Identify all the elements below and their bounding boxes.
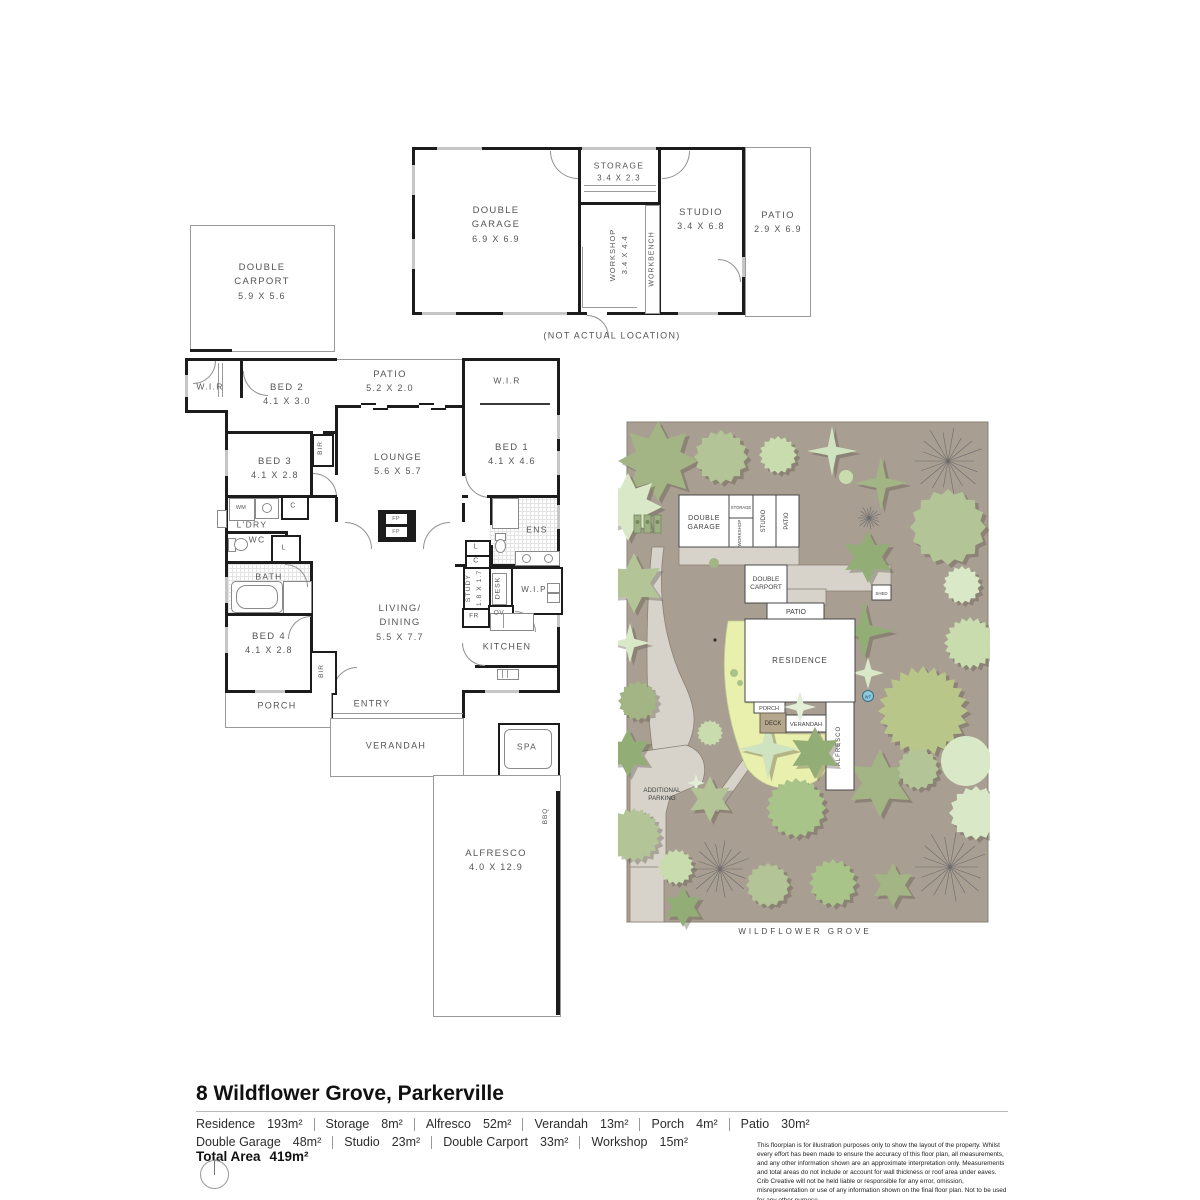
title-divider bbox=[196, 1111, 1008, 1112]
compass-icon bbox=[200, 1160, 229, 1189]
site-label-studio: STUDIO bbox=[761, 509, 767, 532]
site-label-patio: PATIO bbox=[786, 609, 807, 616]
outbuilding-caption: (NOT ACTUAL LOCATION) bbox=[543, 329, 680, 343]
site-label-porch: PORCH bbox=[759, 706, 779, 712]
room-label-entry: ENTRY bbox=[354, 697, 391, 711]
carport-plan: DOUBLE CARPORT5.9 X 5.6 bbox=[190, 225, 335, 352]
svg-text:PARKING: PARKING bbox=[648, 795, 676, 802]
room-label-alfresco: ALFRESCO4.0 X 12.9 bbox=[465, 847, 527, 875]
site-plan: DOUBLE GARAGE STORAGE WORKSHOP STUDIO PA… bbox=[618, 415, 990, 940]
room-label-outb-garage: DOUBLE GARAGE6.9 X 6.9 bbox=[464, 204, 528, 246]
label-l1: L bbox=[282, 545, 286, 552]
label-bbq: BBQ bbox=[541, 808, 551, 825]
room-label-bir: BIR bbox=[316, 441, 326, 455]
outbuilding-plan: DOUBLE GARAGE6.9 X 6.9 STORAGE3.4 X 2.3 … bbox=[412, 147, 812, 347]
room-label-bed4: BED 44.1 X 2.8 bbox=[245, 630, 293, 658]
area-summary-row2: Double Garage48m² Studio23m² Double Carp… bbox=[196, 1135, 688, 1149]
tree-icon bbox=[694, 430, 748, 484]
tree-icon bbox=[941, 736, 990, 786]
label-fp-bottom: FP bbox=[392, 529, 399, 535]
site-label-carport: DOUBLE bbox=[753, 576, 780, 583]
room-label-bath: BATH bbox=[255, 571, 282, 584]
site-label-storage: STORAGE bbox=[731, 505, 752, 510]
room-label-wir-left: W.I.R bbox=[196, 381, 223, 394]
tree-icon bbox=[759, 436, 797, 474]
house-plan: W.I.R BED 24.1 X 3.0 PATIO5.2 X 2.0 W.I.… bbox=[185, 355, 565, 1020]
room-label-bed1: BED 14.1 X 4.6 bbox=[488, 441, 536, 469]
room-label-house-patio: PATIO5.2 X 2.0 bbox=[366, 368, 414, 396]
storage-door-arc-left bbox=[550, 151, 578, 179]
site-label-shed: SHED bbox=[875, 591, 887, 596]
studio-door-arc bbox=[718, 259, 741, 282]
site-label-verandah: VERANDAH bbox=[790, 722, 822, 728]
tree-icon bbox=[730, 669, 738, 677]
site-label-residence: RESIDENCE bbox=[772, 656, 828, 665]
room-label-study: STUDY1.8 X 1.7 bbox=[464, 570, 486, 606]
room-label-bed3: BED 34.1 X 2.8 bbox=[251, 455, 299, 483]
room-label-ens: ENS bbox=[526, 524, 547, 537]
label-l2: L bbox=[474, 544, 478, 551]
room-label-outb-patio: PATIO2.9 X 6.9 bbox=[754, 209, 802, 237]
tree-icon bbox=[658, 849, 694, 885]
room-label-carport: DOUBLE CARPORT5.9 X 5.6 bbox=[230, 261, 294, 303]
room-label-verandah: VERANDAH bbox=[366, 739, 426, 753]
storage-door-arc-right bbox=[662, 151, 690, 179]
svg-text:CARPORT: CARPORT bbox=[750, 584, 782, 591]
label-fp-top: FP bbox=[392, 516, 399, 522]
room-label-outb-workshop: WORKSHOP3.4 X 4.4 bbox=[607, 229, 631, 282]
room-label-spa: SPA bbox=[517, 741, 537, 754]
tree-icon bbox=[809, 859, 857, 907]
label-fr: FR bbox=[469, 613, 479, 620]
room-label-wip: W.I.P bbox=[521, 584, 547, 596]
room-label-outb-studio: STUDIO3.4 X 6.8 bbox=[677, 206, 725, 234]
tree-icon bbox=[618, 681, 658, 721]
tree-icon bbox=[746, 863, 790, 907]
street-label: WILDFLOWER GROVE bbox=[738, 927, 871, 936]
room-label-ldry: L'DRY bbox=[237, 519, 268, 532]
disclaimer: This floorplan is for illustration purpo… bbox=[757, 1141, 1007, 1200]
site-label-parking: ADDITIONAL bbox=[643, 787, 681, 794]
tree-icon bbox=[737, 680, 743, 686]
room-label-lounge: LOUNGE5.6 X 5.7 bbox=[374, 451, 422, 479]
page-title: 8 Wildflower Grove, Parkerville bbox=[196, 1082, 504, 1106]
site-label-wt: WT bbox=[865, 695, 872, 700]
room-label-bir2: BIR bbox=[317, 664, 327, 678]
tree-icon bbox=[897, 748, 939, 790]
tree-icon bbox=[839, 470, 853, 484]
floorplan-page: DOUBLE GARAGE6.9 X 6.9 STORAGE3.4 X 2.3 … bbox=[0, 0, 1200, 1200]
room-label-bed2: BED 24.1 X 3.0 bbox=[263, 381, 311, 409]
svg-text:GARAGE: GARAGE bbox=[688, 524, 721, 531]
label-wm: WM bbox=[236, 505, 246, 511]
gate-icon bbox=[634, 515, 661, 533]
site-label-garage: DOUBLE bbox=[688, 515, 720, 522]
label-c1: C bbox=[290, 503, 296, 510]
room-label-outb-storage: STORAGE3.4 X 2.3 bbox=[594, 160, 645, 185]
room-label-porch: PORCH bbox=[257, 699, 296, 713]
label-desk: DESK bbox=[494, 577, 505, 600]
tree-icon bbox=[697, 720, 723, 746]
label-ov: OV bbox=[494, 610, 504, 617]
tree-icon bbox=[709, 558, 719, 568]
tree-icon bbox=[943, 566, 981, 604]
tree-icon bbox=[910, 489, 986, 565]
site-label-workshop: WORKSHOP bbox=[737, 520, 742, 547]
room-label-living-dining: LIVING/DINING5.5 X 7.7 bbox=[376, 602, 424, 644]
room-label-wir-right: W.I.R bbox=[493, 375, 520, 388]
site-label-patio-col: PATIO bbox=[784, 512, 790, 529]
room-label-kitchen: KITCHEN bbox=[483, 640, 532, 654]
area-summary-row1: Residence193m² Storage8m² Alfresco52m² V… bbox=[196, 1117, 810, 1131]
room-label-wc: WC bbox=[249, 534, 266, 547]
site-label-deck: DECK bbox=[765, 721, 782, 727]
room-label-workbench: WORKBENCH bbox=[646, 231, 657, 286]
label-c2: C bbox=[473, 558, 479, 565]
